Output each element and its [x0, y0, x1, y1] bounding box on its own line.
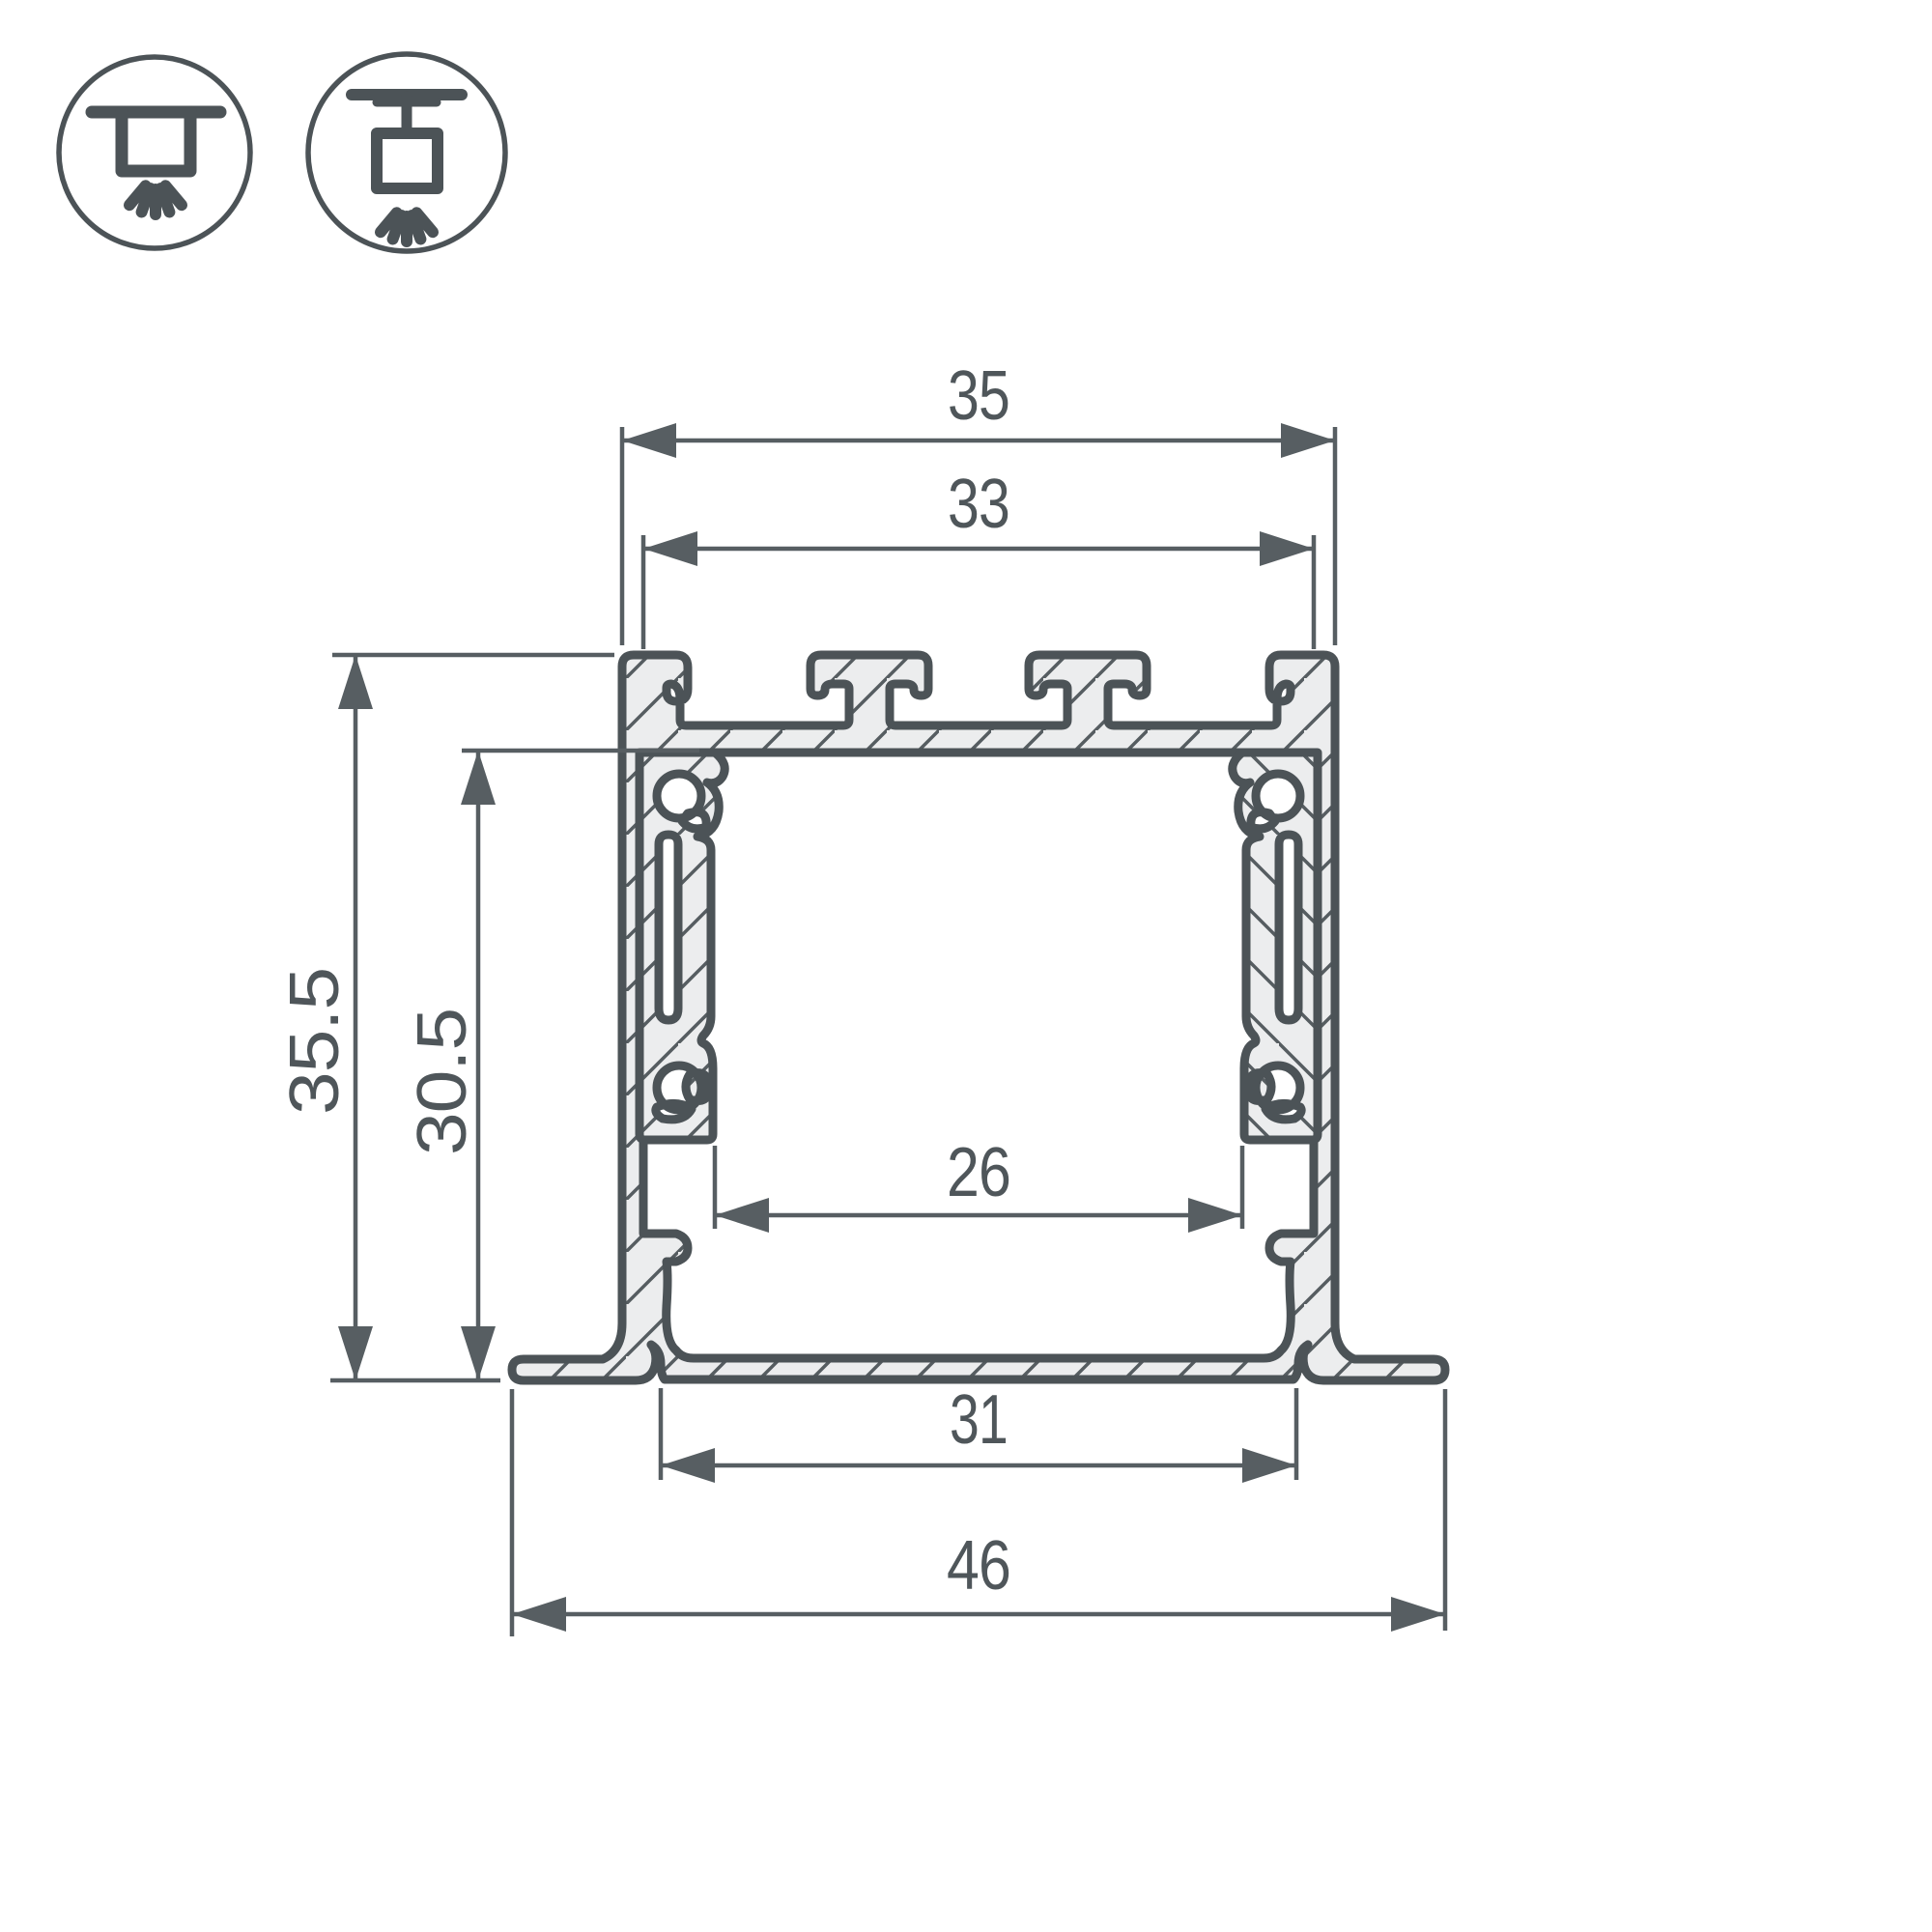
dim-label-channel-width: 26	[947, 1134, 1010, 1211]
recessed-box	[122, 112, 190, 171]
screw-boss-left	[639, 753, 724, 1140]
luminaire-box	[377, 133, 438, 188]
dim-label-top-inner-width: 33	[948, 466, 1009, 543]
dim-label-inner-height: 30.5	[404, 1009, 481, 1155]
dim-label-outer-height: 35.5	[276, 968, 354, 1115]
dim-label-top-width: 35	[948, 357, 1009, 435]
dim-label-opening-width: 31	[950, 1381, 1008, 1459]
dim-opening-width: 31	[661, 1381, 1296, 1483]
profile-drawing: 35 33 35.5 30.5 26 31	[0, 0, 1932, 1932]
recessed-mount-icon	[59, 57, 250, 248]
screw-boss-right	[1233, 753, 1318, 1140]
surface-track-mount-icon	[308, 54, 505, 251]
dim-top-inner-width: 33	[643, 466, 1314, 649]
mount-type-icons	[59, 54, 505, 251]
profile-cross-section	[512, 655, 1445, 1380]
technical-drawing-page: 35 33 35.5 30.5 26 31	[0, 0, 1932, 1932]
dim-label-overall-width: 46	[947, 1527, 1010, 1605]
dim-channel-width: 26	[715, 1134, 1242, 1233]
light-rays	[381, 213, 433, 241]
light-rays	[129, 185, 182, 214]
